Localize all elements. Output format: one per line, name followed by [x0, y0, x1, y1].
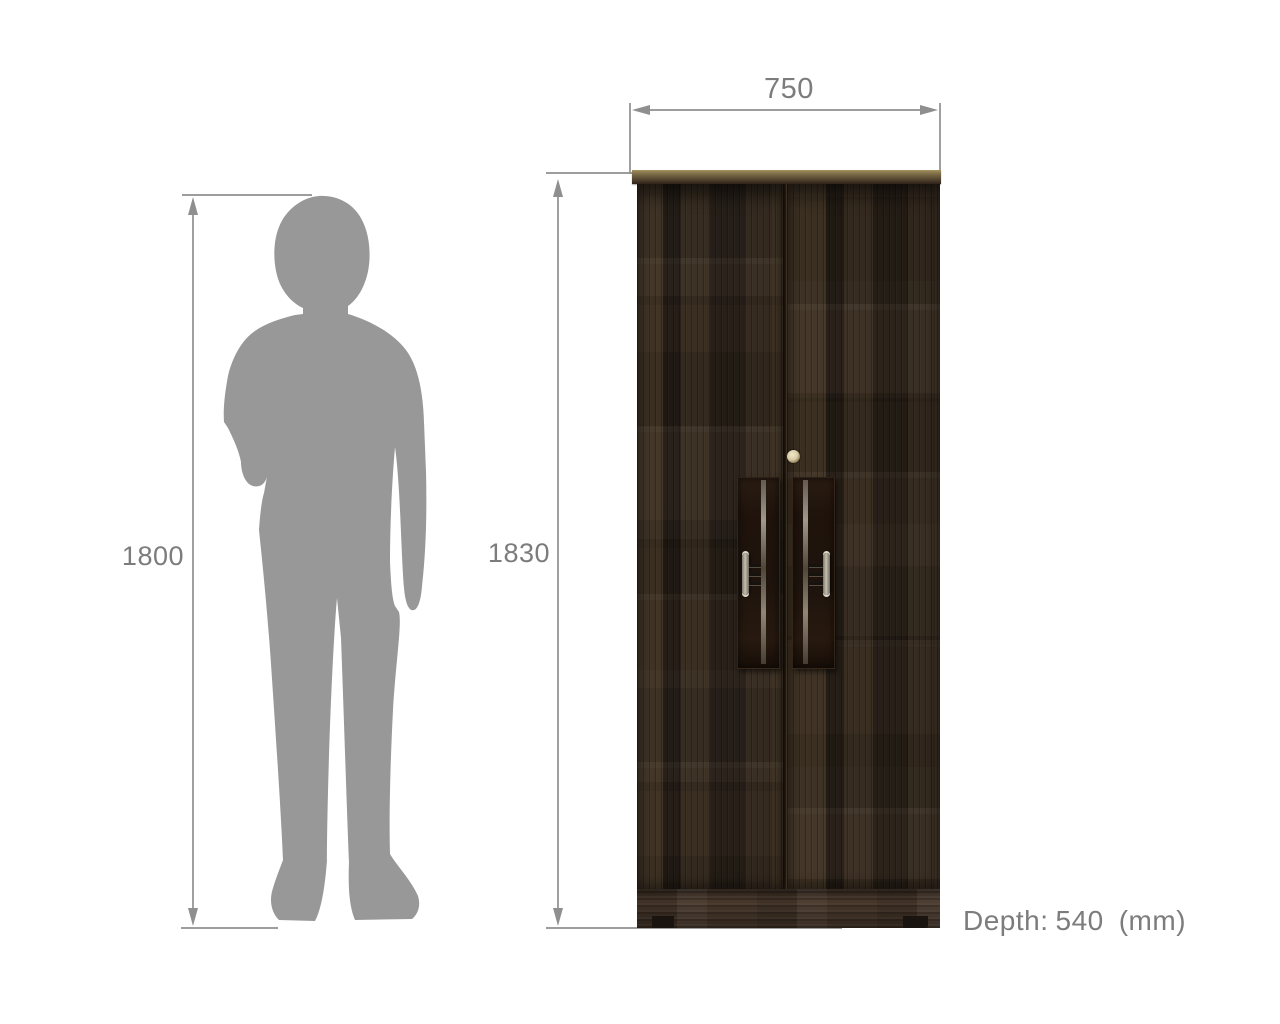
handle-rung [809, 582, 823, 585]
wardrobe-cabinet [637, 184, 940, 928]
wardrobe-door-gap [783, 184, 787, 889]
depth-unit: (mm) [1119, 905, 1186, 936]
wardrobe-foot-left [652, 916, 674, 928]
depth-label: Depth:540(mm) [963, 905, 1186, 937]
product-dimension-diagram: 750 1830 1800 Depth:540(mm) [0, 0, 1280, 1024]
left-handle-plate [737, 477, 780, 669]
right-handle-plate [792, 477, 835, 669]
wardrobe-height-label: 1830 [456, 538, 550, 569]
wardrobe-width-label: 750 [737, 73, 841, 106]
wardrobe [632, 170, 941, 928]
right-handle-grip [823, 553, 830, 595]
left-handle-strip [761, 480, 766, 664]
handle-rung [749, 573, 761, 576]
depth-prefix: Depth: [963, 905, 1049, 936]
wardrobe-base [637, 889, 940, 928]
handle-rung [749, 582, 761, 585]
depth-value: 540 [1056, 905, 1104, 936]
keyhole [787, 450, 800, 463]
right-handle-strip [803, 480, 808, 664]
wardrobe-width-dimension [630, 103, 940, 174]
handle-rung [749, 564, 761, 567]
left-handle-grip [742, 553, 749, 595]
person-silhouette-path [224, 196, 427, 921]
wardrobe-foot-right [903, 916, 928, 928]
wardrobe-top-board [632, 170, 941, 184]
person-silhouette [215, 194, 440, 934]
handle-rung [809, 573, 823, 576]
handle-rung [809, 564, 823, 567]
person-height-label: 1800 [98, 541, 184, 572]
